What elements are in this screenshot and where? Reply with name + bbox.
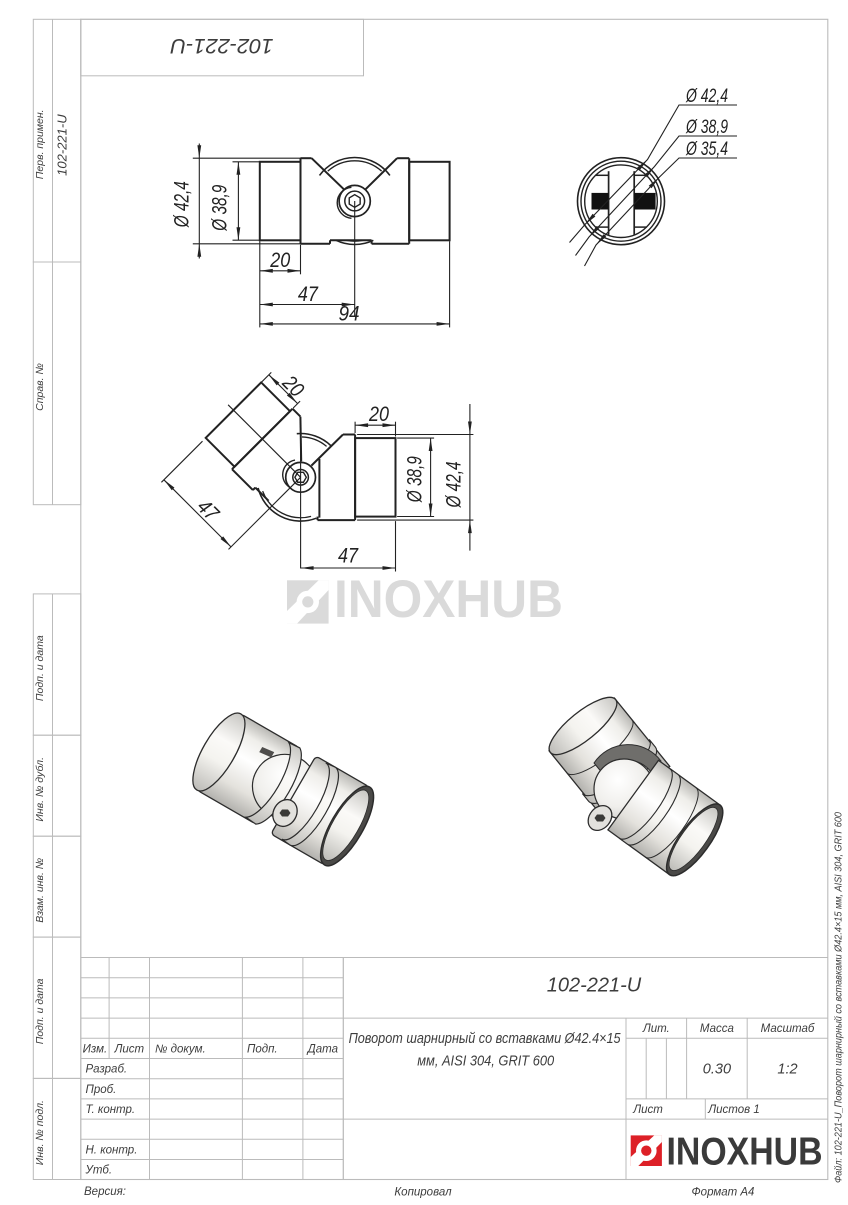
svg-text:Подп. и дата: Подп. и дата	[34, 635, 46, 701]
svg-text:INOXHUB: INOXHUB	[334, 570, 563, 629]
svg-text:Листов 1: Листов 1	[707, 1104, 759, 1116]
svg-text:Разраб.: Разраб.	[86, 1064, 128, 1076]
svg-text:Лист: Лист	[113, 1043, 144, 1055]
svg-text:№ докум.: № докум.	[155, 1043, 206, 1055]
svg-text:Лит.: Лит.	[642, 1023, 670, 1035]
svg-text:Ø 42,4: Ø 42,4	[685, 86, 728, 107]
svg-text:Лист: Лист	[632, 1104, 663, 1116]
svg-text:47: 47	[338, 545, 359, 568]
svg-text:Формат А4: Формат А4	[692, 1187, 755, 1199]
svg-text:20: 20	[368, 403, 389, 426]
svg-text:Ø 38,9: Ø 38,9	[685, 117, 728, 138]
svg-text:Поворот шарнирный со вставками: Поворот шарнирный со вставками Ø42.4×15	[349, 1030, 622, 1047]
svg-text:1:2: 1:2	[777, 1062, 797, 1078]
svg-text:Справ. №: Справ. №	[34, 363, 46, 411]
svg-text:Файл: 102-221-U_Поворот шарнир: Файл: 102-221-U_Поворот шарнирный со вст…	[833, 812, 845, 1183]
svg-text:Ø 35,4: Ø 35,4	[685, 139, 728, 160]
svg-text:Утб.: Утб.	[85, 1165, 113, 1177]
svg-text:Т. контр.: Т. контр.	[86, 1104, 136, 1116]
svg-text:Проб.: Проб.	[86, 1084, 117, 1096]
svg-text:Подп. и дата: Подп. и дата	[34, 978, 46, 1044]
svg-text:Масштаб: Масштаб	[761, 1023, 815, 1035]
svg-text:Масса: Масса	[700, 1023, 734, 1035]
svg-text:102-221-U: 102-221-U	[547, 975, 642, 997]
svg-text:Ø 38,9: Ø 38,9	[209, 184, 232, 231]
svg-text:Версия:: Версия:	[84, 1186, 126, 1198]
svg-text:Перв. примен.: Перв. примен.	[34, 109, 46, 179]
svg-text:Ø 42,4: Ø 42,4	[443, 462, 466, 509]
svg-text:Инв. № дубл.: Инв. № дубл.	[34, 757, 46, 822]
svg-text:47: 47	[298, 283, 319, 306]
svg-text:94: 94	[339, 303, 360, 326]
svg-text:Подп.: Подп.	[247, 1043, 278, 1055]
svg-text:Копировал: Копировал	[394, 1187, 452, 1199]
svg-text:Инв. № подл.: Инв. № подл.	[34, 1100, 46, 1165]
svg-text:20: 20	[269, 249, 290, 272]
svg-text:мм, AISI 304, GRIT 600: мм, AISI 304, GRIT 600	[417, 1053, 555, 1070]
svg-text:Взам. инв. №: Взам. инв. №	[34, 858, 46, 923]
svg-text:INOXHUB: INOXHUB	[667, 1131, 823, 1174]
svg-text:Изм.: Изм.	[83, 1043, 108, 1055]
svg-text:Дата: Дата	[306, 1043, 338, 1055]
svg-text:102-221-U: 102-221-U	[170, 34, 274, 57]
svg-text:Ø 38,9: Ø 38,9	[404, 456, 427, 503]
svg-text:102-221-U: 102-221-U	[55, 114, 70, 176]
svg-text:Ø 42,4: Ø 42,4	[171, 181, 194, 228]
svg-text:0.30: 0.30	[703, 1062, 731, 1078]
svg-text:Н. контр.: Н. контр.	[86, 1144, 138, 1156]
